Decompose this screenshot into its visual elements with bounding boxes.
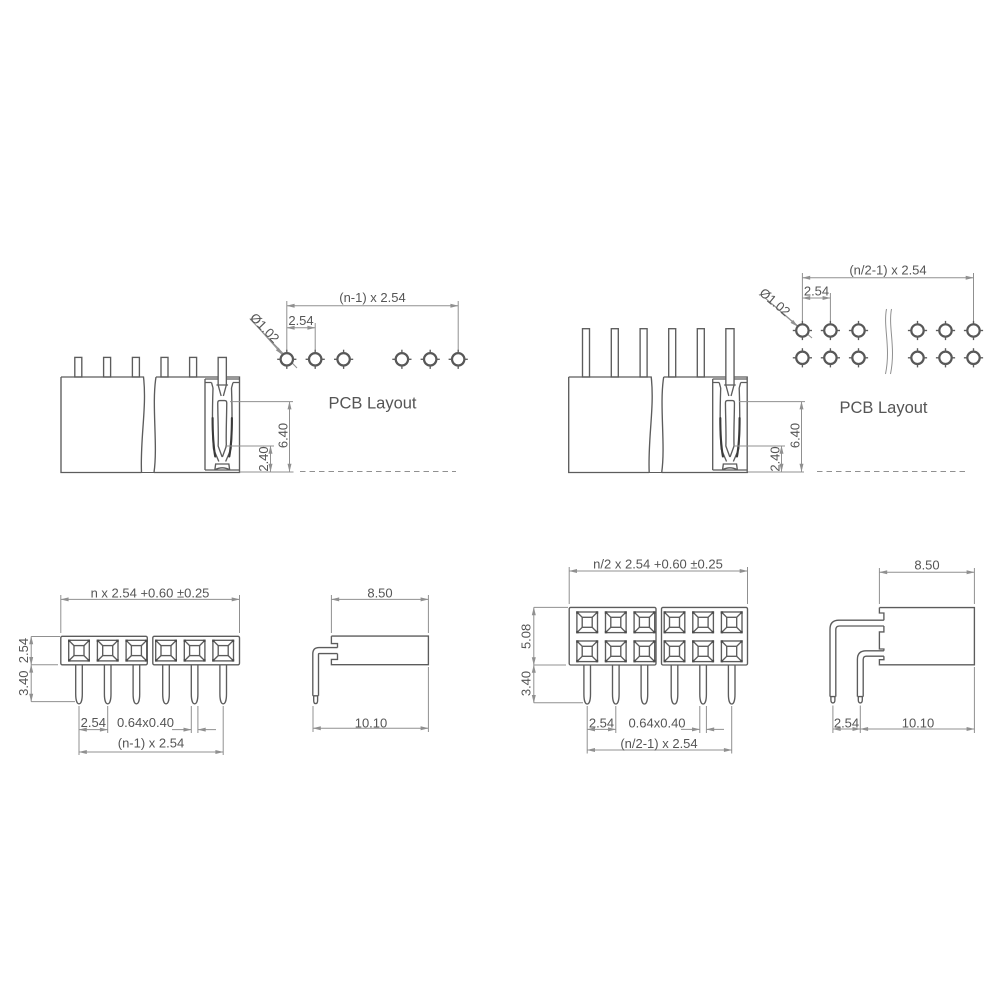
svg-text:10.10: 10.10	[902, 716, 935, 731]
svg-text:6.40: 6.40	[788, 423, 803, 448]
svg-text:3.40: 3.40	[519, 671, 534, 696]
svg-text:(n-1) x 2.54: (n-1) x 2.54	[118, 736, 184, 751]
svg-text:(n/2-1) x 2.54: (n/2-1) x 2.54	[620, 736, 697, 751]
svg-text:3.40: 3.40	[16, 671, 31, 696]
svg-text:(n/2-1) x 2.54: (n/2-1) x 2.54	[849, 262, 926, 277]
svg-text:6.40: 6.40	[276, 423, 291, 448]
svg-text:2.54: 2.54	[834, 716, 859, 731]
svg-text:0.64x0.40: 0.64x0.40	[117, 715, 174, 730]
svg-text:2.54: 2.54	[288, 313, 313, 328]
svg-text:2.40: 2.40	[768, 446, 783, 471]
svg-text:PCB Layout: PCB Layout	[839, 399, 927, 417]
svg-text:10.10: 10.10	[355, 715, 388, 730]
svg-text:0.64x0.40: 0.64x0.40	[628, 715, 685, 730]
svg-text:(n-1) x 2.54: (n-1) x 2.54	[339, 290, 405, 305]
svg-text:2.40: 2.40	[256, 446, 271, 471]
svg-text:8.50: 8.50	[914, 558, 939, 573]
svg-text:n x 2.54 +0.60 ±0.25: n x 2.54 +0.60 ±0.25	[91, 585, 210, 600]
svg-text:PCB Layout: PCB Layout	[328, 395, 416, 413]
svg-text:2.54: 2.54	[804, 283, 829, 298]
svg-text:8.50: 8.50	[367, 585, 392, 600]
svg-text:2.54: 2.54	[16, 638, 31, 663]
svg-text:n/2 x 2.54 +0.60 ±0.25: n/2 x 2.54 +0.60 ±0.25	[593, 556, 723, 571]
svg-text:2.54: 2.54	[81, 715, 106, 730]
svg-text:2.54: 2.54	[589, 715, 614, 730]
svg-text:5.08: 5.08	[519, 624, 534, 649]
